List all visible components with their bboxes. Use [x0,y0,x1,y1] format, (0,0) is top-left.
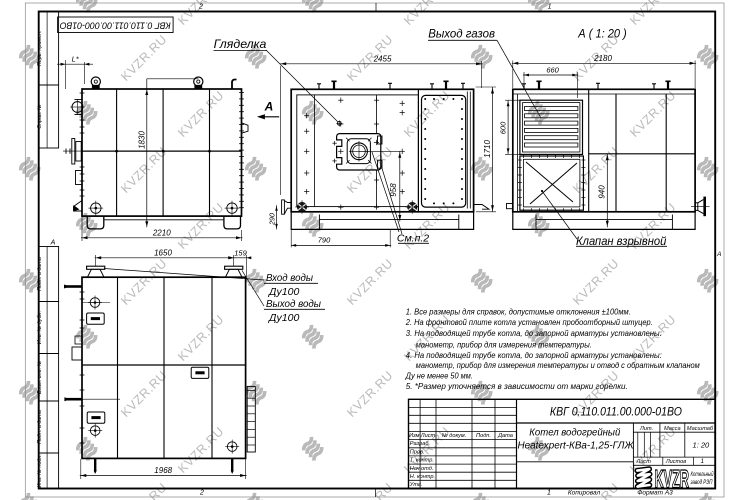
svg-text:1710: 1710 [483,140,492,158]
svg-text:1: 1 [547,490,551,497]
svg-text:159: 159 [234,248,247,257]
svg-text:Выход газов: Выход газов [428,27,495,41]
svg-text:Котел водогрейный: Котел водогрейный [529,426,620,438]
svg-text:600: 600 [499,121,508,134]
svg-text:3. На подводящей трубе котла,: 3. На подводящей трубе котла, до запорно… [406,329,662,338]
svg-text:2210: 2210 [152,229,171,238]
svg-text:Т. контр.: Т. контр. [410,458,434,464]
svg-text:Масштаб: Масштаб [687,426,714,432]
svg-text:5. *Размер уточняется в зависи: 5. *Размер уточняется в зависимости от м… [406,382,628,391]
svg-text:Справ. №: Справ. № [37,104,43,129]
svg-text:Выход воды: Выход воды [266,298,321,310]
svg-text:манометр, прибор для измерения: манометр, прибор для измерения температу… [416,340,592,349]
svg-text:Лист: Лист [420,433,436,439]
svg-text:Взам. инв. №: Взам. инв. № [37,360,43,394]
svg-text:Разраб.: Разраб. [410,441,430,447]
svg-text:Ду100: Ду100 [268,312,299,324]
svg-text:А ( 1: 20 ): А ( 1: 20 ) [577,27,626,41]
svg-text:А: А [716,251,721,258]
svg-text:Копировал: Копировал [568,490,601,497]
svg-text:940: 940 [598,185,607,199]
svg-text:Ду не менее 50 мм.: Ду не менее 50 мм. [405,372,473,381]
svg-text:790: 790 [318,235,331,244]
svg-text:KVZR: KVZR [655,466,690,494]
svg-text:2: 2 [198,4,203,11]
svg-text:Утв.: Утв. [409,482,423,488]
svg-text:Инв. № дубл.: Инв. № дубл. [37,311,43,344]
svg-text:1: 1 [701,459,704,465]
svg-text:Ду100: Ду100 [268,286,299,298]
svg-text:Лит.: Лит. [639,426,653,432]
svg-text:660: 660 [546,66,559,75]
svg-text:1650: 1650 [154,248,172,257]
svg-text:Heatexpert-КВа-1,25-ГЛЖ: Heatexpert-КВа-1,25-ГЛЖ [518,440,635,451]
svg-text:Подп. и дата: Подп. и дата [37,257,43,291]
svg-text:Подп.: Подп. [476,433,491,439]
svg-text:L*: L* [72,55,80,64]
svg-text:№ докум.: № докум. [442,433,467,439]
svg-text:А: А [264,100,274,114]
svg-text:завод РЭП: завод РЭП [690,480,713,486]
svg-text:4. На подводящей трубе котла,: 4. На подводящей трубе котла, до запорно… [406,351,662,360]
svg-text:1: 20: 1: 20 [693,441,711,450]
svg-text:Подп. и дата: Подп. и дата [37,410,43,444]
svg-text:А: А [50,240,56,247]
svg-text:1: 1 [548,4,552,11]
svg-text:1968: 1968 [154,466,172,475]
svg-text:Инв. № подл.: Инв. № подл. [37,454,43,487]
svg-text:Н. контр.: Н. контр. [410,474,435,480]
svg-text:Нач.отд.: Нач.отд. [410,466,434,472]
svg-text:манометр, прибор для измерения: манометр, прибор для измерения температу… [416,361,700,370]
svg-text:См.п.2: См.п.2 [397,233,429,245]
svg-text:Масса: Масса [664,426,681,432]
svg-text:Гляделка: Гляделка [214,37,267,51]
svg-text:Пров.: Пров. [410,449,425,455]
svg-text:Вход воды: Вход воды [266,272,313,284]
svg-text:КВГ 0.110.011.00.000-01ВО: КВГ 0.110.011.00.000-01ВО [550,405,682,419]
svg-text:Дата: Дата [497,433,513,439]
svg-text:Лист: Лист [635,459,651,465]
svg-text:2455: 2455 [373,54,392,63]
svg-text:1830: 1830 [137,131,146,149]
svg-text:Изм: Изм [409,433,420,439]
svg-text:2: 2 [199,490,204,497]
svg-text:1. Все размеры для справок, до: 1. Все размеры для справок, допустимые о… [406,308,631,317]
svg-text:2. На фронтовой плите котла ус: 2. На фронтовой плите котла установлен п… [405,318,653,327]
svg-text:2180: 2180 [593,54,612,63]
svg-text:Листов: Листов [665,459,686,465]
svg-text:290: 290 [269,213,276,226]
svg-text:Котельный: Котельный [691,471,714,478]
svg-text:Перв. примен.: Перв. примен. [37,30,43,66]
svg-text:КВГ 0.110.011.00.000-01ВО: КВГ 0.110.011.00.000-01ВО [59,19,171,30]
